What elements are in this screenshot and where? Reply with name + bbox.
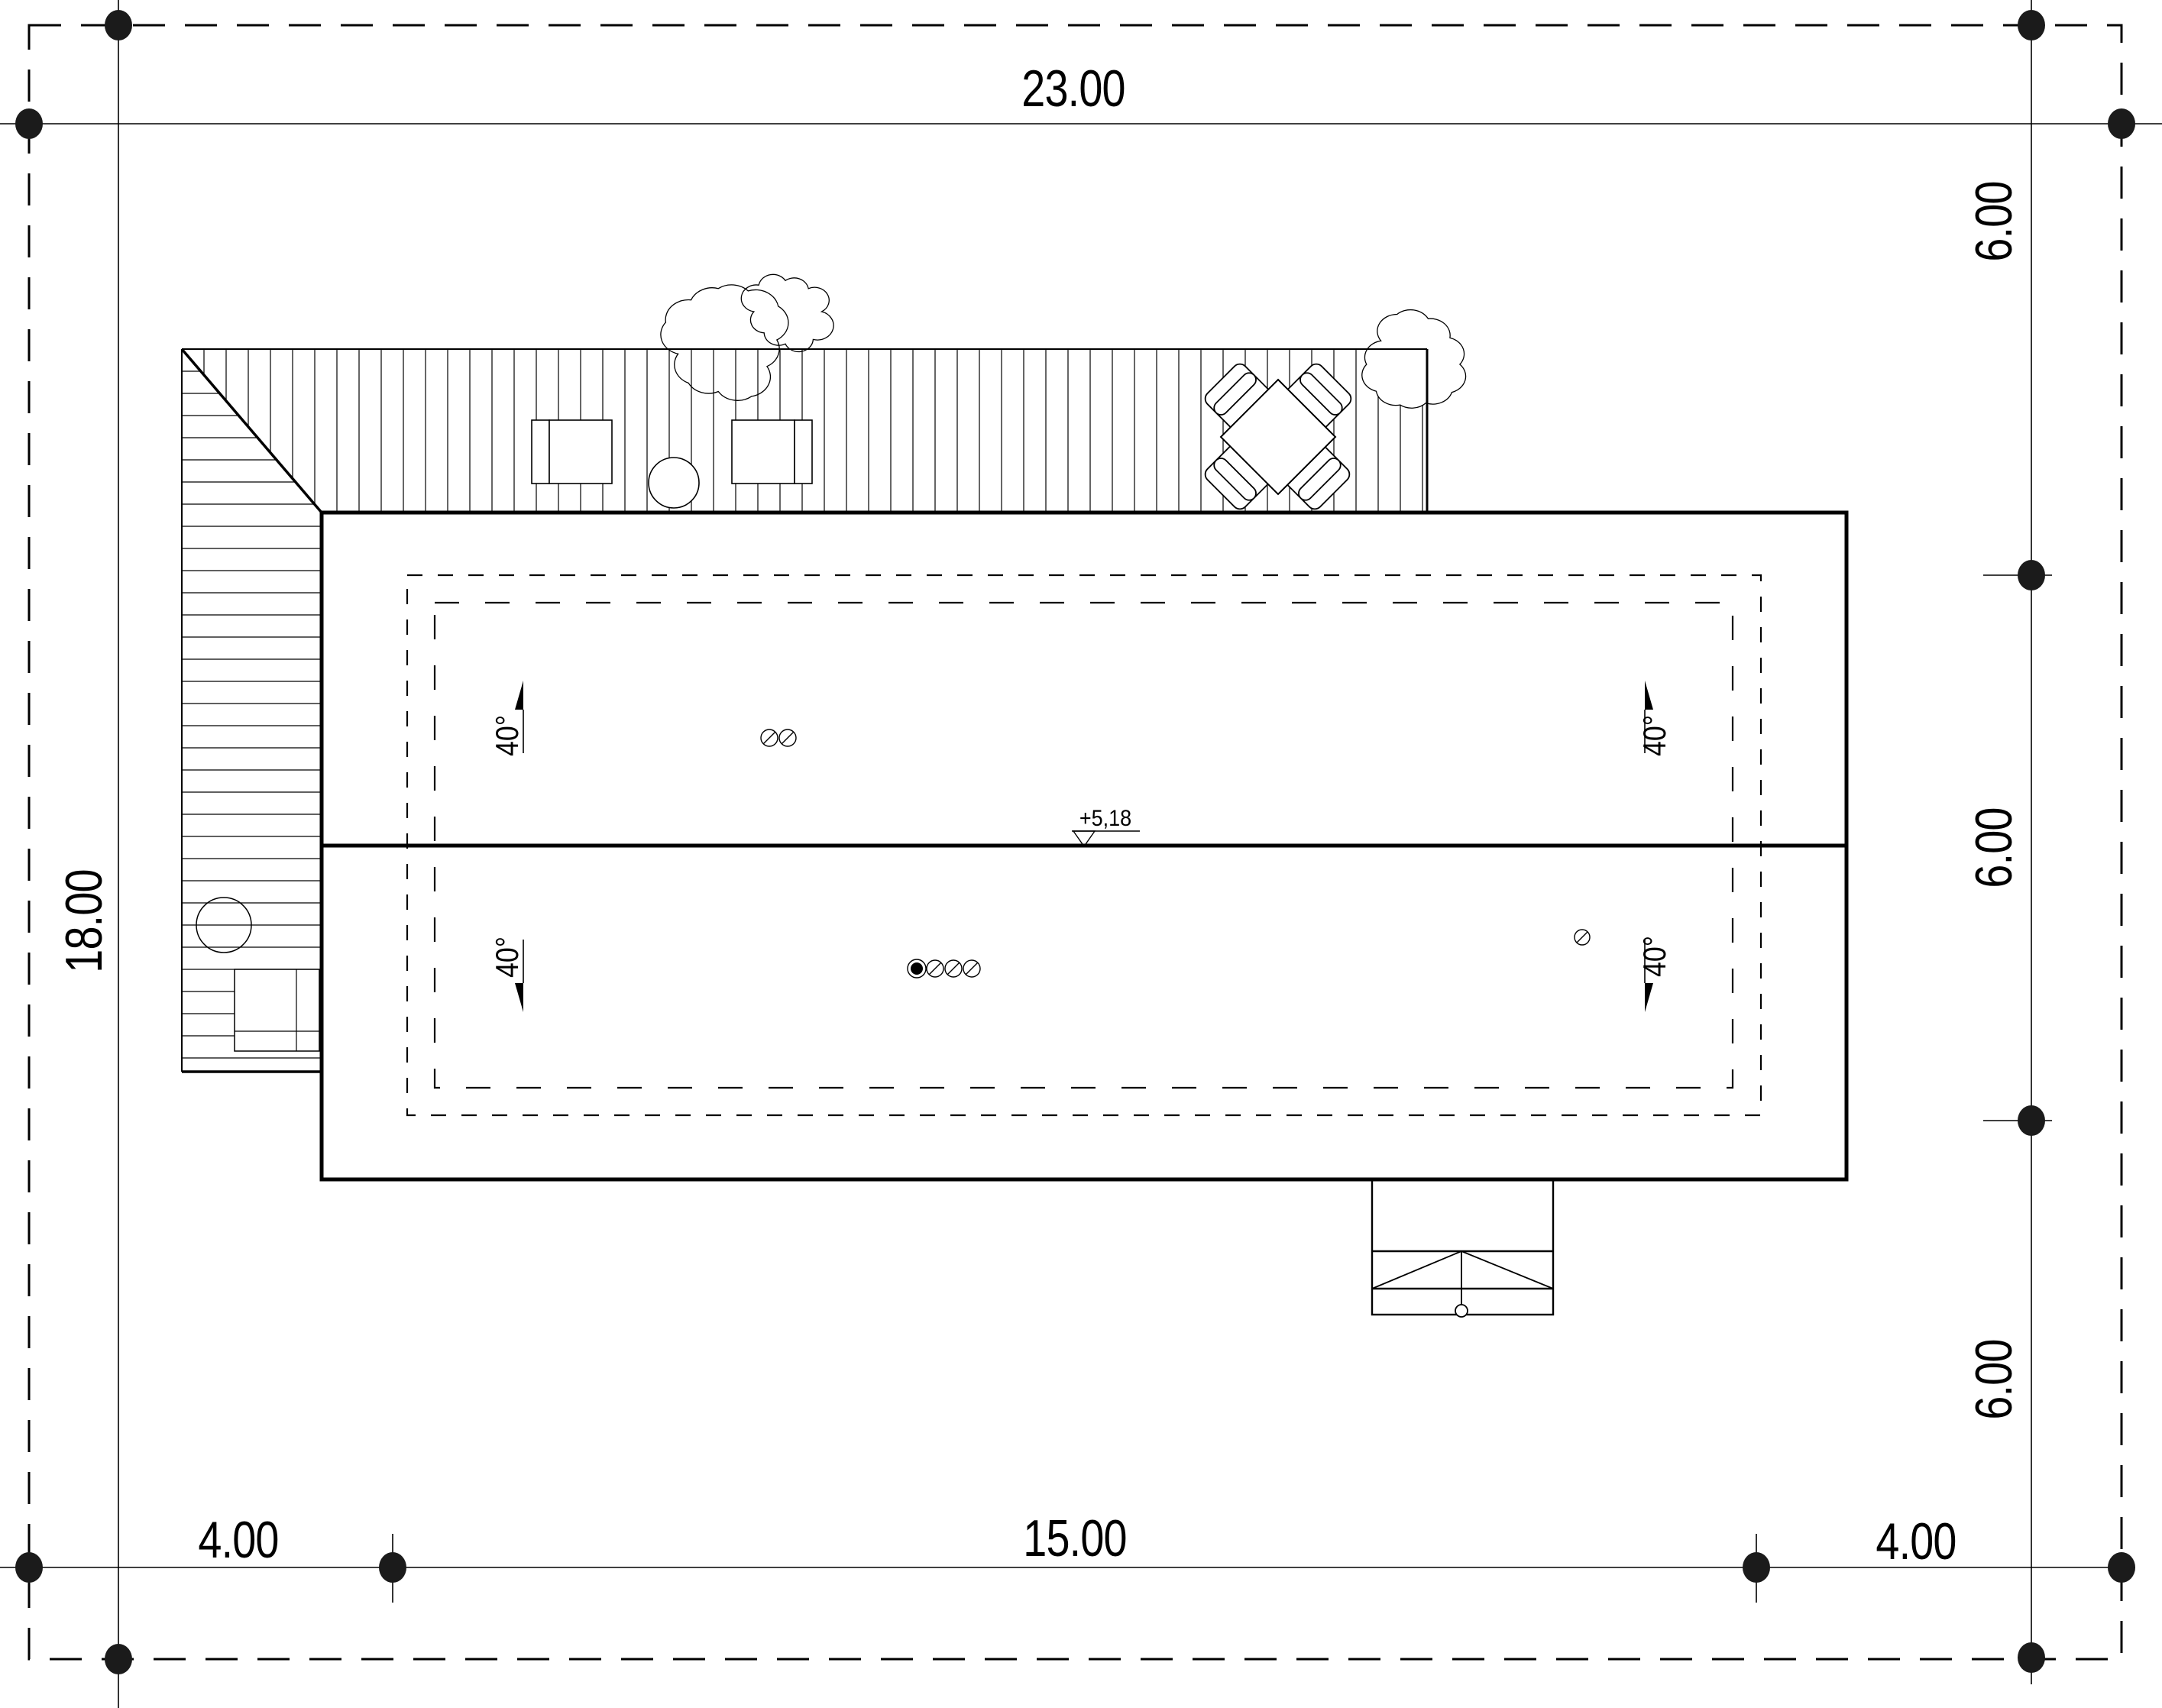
dim-right-segment: 6.00: [1964, 1339, 2024, 1419]
dim-right-segment: 6.00: [1964, 181, 2024, 261]
lounge-chair-back: [532, 420, 549, 484]
survey-marker-icon: [2018, 1642, 2045, 1673]
side-table: [649, 458, 699, 508]
survey-marker-icon: [15, 1552, 43, 1583]
survey-marker-icon: [2018, 10, 2045, 40]
slashed-circle-icon: [963, 960, 980, 977]
property-boundary: [29, 25, 2122, 1659]
survey-marker-icon: [105, 10, 132, 40]
ridge-level-label: +5,18: [1079, 806, 1131, 832]
survey-marker-icon: [2108, 1552, 2135, 1583]
survey-marker-icon: [2018, 1105, 2045, 1136]
lounge-chair: [732, 420, 795, 484]
slashed-circle-icon: [945, 960, 962, 977]
survey-marker-icon: [379, 1552, 406, 1583]
lounge-chair-back: [795, 420, 812, 484]
slashed-circle-icon: [761, 729, 778, 746]
slope-label: 40°: [1636, 936, 1673, 977]
tree-icon: [741, 274, 833, 351]
slashed-circle-icon: [1575, 930, 1590, 945]
survey-marker-icon: [105, 1644, 132, 1674]
survey-markers: [15, 10, 2135, 1674]
tree-icon: [1362, 310, 1466, 409]
survey-marker-icon: [2018, 560, 2045, 590]
lounge-chair: [549, 420, 612, 484]
dim-top-width: 23.00: [1021, 59, 1125, 118]
filled-circle-icon: [908, 959, 926, 978]
site-plan-drawing: 23.00 18.00 6.00 6.00 6.00 4.00 15.00 4.…: [0, 0, 2162, 1708]
patio-hatch: [182, 371, 322, 1058]
dim-bottom-segment: 15.00: [1023, 1509, 1126, 1568]
patio-bench: [235, 969, 319, 1051]
entrance-porch: [1372, 1179, 1553, 1317]
survey-marker-icon: [1743, 1552, 1770, 1583]
slope-label: 40°: [1636, 715, 1673, 756]
trees: [661, 274, 1466, 408]
dim-left-height: 18.00: [54, 869, 114, 972]
slashed-circle-icon: [779, 729, 796, 746]
dim-bottom-segment: 4.00: [1876, 1512, 1956, 1571]
dining-set: [1202, 361, 1354, 513]
slope-label: 40°: [489, 936, 526, 978]
survey-marker-icon: [2108, 108, 2135, 139]
slashed-circle-icon: [927, 960, 943, 977]
survey-marker-icon: [15, 108, 43, 139]
roof-vents: [761, 729, 1590, 978]
patio-outline: [182, 349, 322, 1072]
deck-furniture: [532, 420, 812, 508]
dim-right-segment: 6.00: [1964, 807, 2024, 888]
plan-linework: [0, 0, 2162, 1708]
dim-bottom-segment: 4.00: [198, 1510, 278, 1570]
dimension-lines: [0, 0, 2162, 1708]
slope-label: 40°: [489, 715, 526, 756]
